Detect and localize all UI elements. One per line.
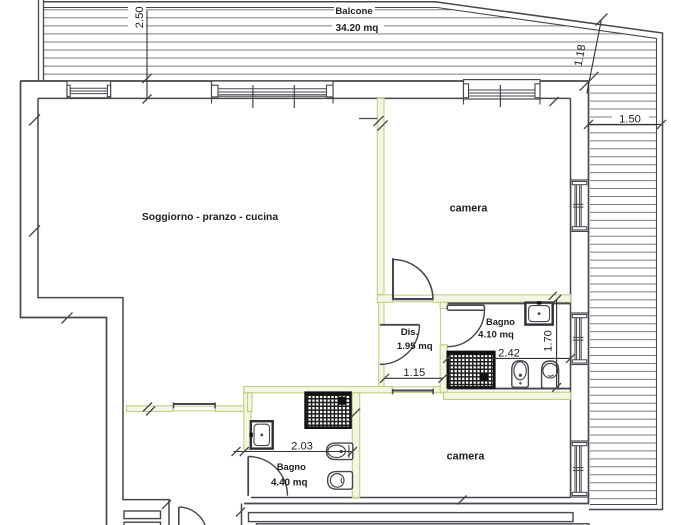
svg-text:2.42: 2.42 xyxy=(498,347,520,359)
svg-text:Balcone: Balcone xyxy=(335,6,372,17)
svg-text:2.03: 2.03 xyxy=(291,440,313,452)
svg-text:camera: camera xyxy=(450,202,489,214)
svg-text:1.95 mq: 1.95 mq xyxy=(397,341,433,352)
svg-text:1.70: 1.70 xyxy=(543,330,555,352)
svg-text:34.20 mq: 34.20 mq xyxy=(336,23,379,34)
svg-text:Soggiorno - pranzo - cucina: Soggiorno - pranzo - cucina xyxy=(142,212,278,223)
svg-text:camera: camera xyxy=(447,450,486,462)
svg-text:1.15: 1.15 xyxy=(403,367,425,379)
svg-text:4.10 mq: 4.10 mq xyxy=(478,329,514,340)
svg-text:2.50: 2.50 xyxy=(134,6,146,28)
svg-text:Bagno: Bagno xyxy=(486,317,515,327)
svg-text:Dis.: Dis. xyxy=(401,327,419,338)
svg-text:1.50: 1.50 xyxy=(619,114,641,126)
svg-text:4.40 mq: 4.40 mq xyxy=(271,478,308,489)
svg-text:Bagno: Bagno xyxy=(277,462,306,472)
